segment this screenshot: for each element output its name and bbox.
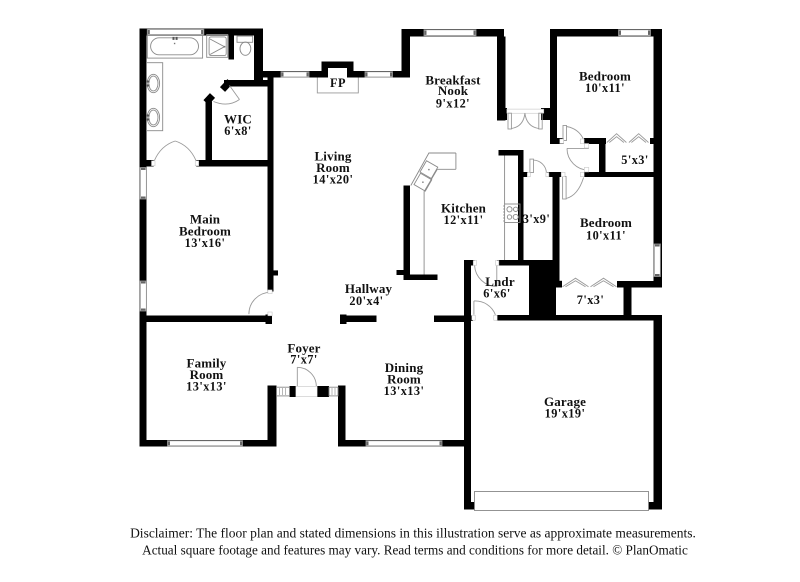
svg-text:13'x16': 13'x16' (185, 236, 226, 250)
svg-text:FP: FP (330, 76, 346, 90)
svg-text:13'x13': 13'x13' (384, 384, 425, 398)
svg-text:20'x4': 20'x4' (349, 294, 383, 308)
svg-text:Actual square footage and feat: Actual square footage and features may v… (142, 543, 688, 558)
svg-text:13'x13': 13'x13' (186, 380, 227, 394)
svg-text:10'x11': 10'x11' (586, 229, 626, 243)
svg-text:10'x11': 10'x11' (585, 81, 625, 95)
svg-text:6'x8': 6'x8' (224, 124, 252, 138)
svg-text:6'x6': 6'x6' (483, 287, 511, 301)
svg-text:19'x19': 19'x19' (545, 407, 586, 421)
svg-text:5'x3': 5'x3' (621, 153, 649, 167)
svg-text:3'x9': 3'x9' (523, 212, 551, 226)
svg-text:7'x7': 7'x7' (290, 353, 318, 367)
svg-text:Disclaimer: The floor plan and: Disclaimer: The floor plan and stated di… (130, 526, 696, 541)
svg-text:7'x3': 7'x3' (577, 293, 605, 307)
svg-text:9'x12': 9'x12' (436, 97, 470, 111)
svg-text:12'x11': 12'x11' (443, 213, 483, 227)
svg-text:14'x20': 14'x20' (313, 173, 354, 187)
